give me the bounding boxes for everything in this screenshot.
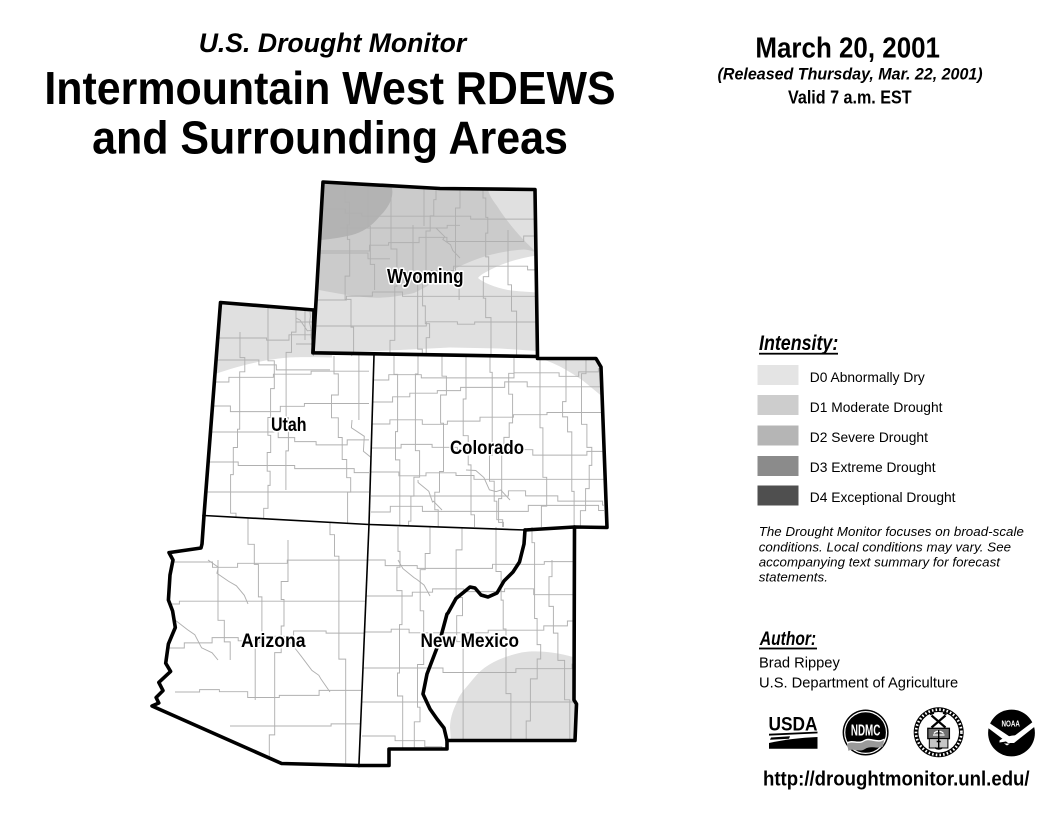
- svg-text:March 20, 2001: March 20, 2001: [755, 33, 940, 65]
- svg-text:New Mexico: New Mexico: [421, 631, 520, 652]
- svg-text:D1 Moderate Drought: D1 Moderate Drought: [810, 400, 943, 415]
- svg-text:(Released Thursday, Mar. 22, 2: (Released Thursday, Mar. 22, 2001): [718, 65, 983, 84]
- svg-text:Brad Rippey: Brad Rippey: [759, 655, 840, 671]
- svg-text:Colorado: Colorado: [450, 438, 524, 459]
- svg-text:Valid 7 a.m. EST: Valid 7 a.m. EST: [788, 88, 912, 108]
- svg-text:accompanying text summary for: accompanying text summary for forecast: [759, 554, 1002, 569]
- svg-text:Intensity:: Intensity:: [759, 332, 838, 356]
- svg-text:NDMC: NDMC: [851, 722, 881, 739]
- svg-text:Wyoming: Wyoming: [387, 266, 464, 288]
- svg-text:D0 Abnormally Dry: D0 Abnormally Dry: [810, 370, 925, 385]
- svg-text:NOAA: NOAA: [1001, 719, 1020, 728]
- svg-text:Intermountain West RDEWS: Intermountain West RDEWS: [44, 62, 615, 114]
- svg-text:D2 Severe Drought: D2 Severe Drought: [810, 430, 928, 445]
- svg-text:U.S. Department of Agriculture: U.S. Department of Agriculture: [759, 676, 958, 692]
- svg-text:The Drought Monitor focuses on: The Drought Monitor focuses on broad-sca…: [759, 524, 1024, 539]
- svg-text:and Surrounding Areas: and Surrounding Areas: [92, 111, 568, 163]
- svg-text:Arizona: Arizona: [241, 631, 306, 652]
- svg-text:D4 Exceptional Drought: D4 Exceptional Drought: [810, 490, 956, 505]
- svg-text:http://droughtmonitor.unl.edu/: http://droughtmonitor.unl.edu/: [763, 768, 1030, 790]
- svg-text:Author:: Author:: [759, 627, 816, 649]
- svg-text:statements.: statements.: [759, 569, 828, 584]
- svg-text:Utah: Utah: [271, 414, 307, 436]
- svg-text:conditions. Local conditions m: conditions. Local conditions may vary. S…: [759, 539, 1011, 554]
- svg-text:D3 Extreme Drought: D3 Extreme Drought: [810, 460, 936, 475]
- svg-text:U.S. Drought Monitor: U.S. Drought Monitor: [199, 28, 468, 58]
